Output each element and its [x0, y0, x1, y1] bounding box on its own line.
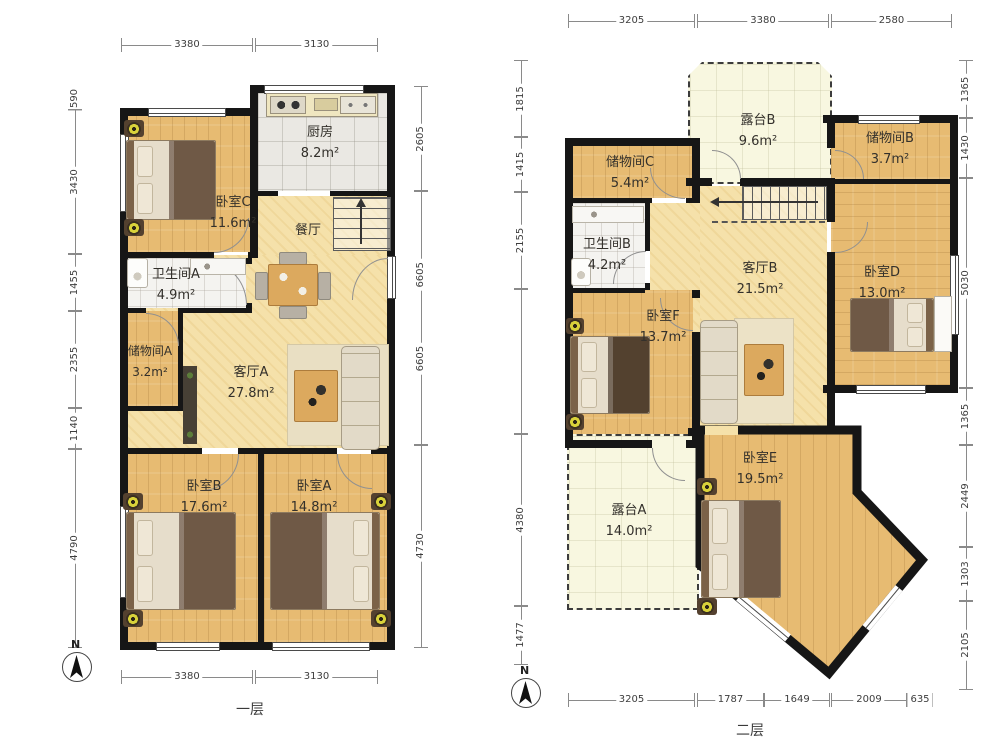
dim-left: 2155	[514, 191, 528, 290]
dim-top: 3205	[568, 14, 695, 28]
stairs-arrow-icon	[356, 198, 366, 207]
dim-top: 3380	[121, 38, 253, 52]
stairs-icon	[742, 186, 827, 220]
dim-right: 2605	[414, 86, 428, 192]
dim-bottom: 635	[907, 693, 933, 707]
nightstand-icon	[123, 610, 143, 627]
stairs-dashed-line	[712, 221, 825, 223]
window	[856, 385, 926, 394]
wall	[827, 115, 835, 148]
bed-icon	[126, 512, 236, 610]
nightstand-icon	[124, 219, 144, 236]
sink-icon	[340, 96, 376, 114]
wall	[692, 290, 700, 298]
coffee-table-icon	[744, 344, 784, 396]
dim-left: 1415	[514, 136, 528, 193]
dim-left: 590	[68, 86, 82, 111]
dim-right: 4730	[414, 444, 428, 648]
dim-left: 1455	[68, 253, 82, 312]
dim-right: 1430	[959, 117, 973, 179]
dim-left: 4380	[514, 433, 528, 607]
bath-counter	[572, 206, 644, 223]
room-label-living-b: 客厅B21.5m²	[737, 258, 784, 300]
wall	[565, 440, 652, 448]
nightstand-icon	[124, 120, 144, 137]
bed-icon	[570, 336, 650, 414]
room-label-bedroom-b: 卧室B17.6m²	[181, 476, 228, 518]
wall	[686, 198, 692, 203]
chair-icon	[255, 272, 268, 300]
compass-n-label: N	[520, 664, 529, 677]
dim-right: 1303	[959, 546, 973, 602]
room-label-bedroom-c: 卧室C11.6m²	[210, 192, 257, 234]
room-label-storage-a: 储物间A3.2m²	[128, 341, 172, 383]
dim-right: 2449	[959, 444, 973, 548]
wall	[124, 308, 146, 313]
dim-top: 2580	[831, 14, 952, 28]
room-label-kitchen: 厨房8.2m²	[301, 122, 340, 164]
wall	[330, 191, 391, 196]
bed-icon	[126, 140, 216, 220]
room-label-terrace-b: 露台B9.6m²	[739, 110, 778, 152]
room-label-bedroom-e: 卧室E19.5m²	[737, 448, 784, 490]
dim-left: 3430	[68, 109, 82, 255]
dim-left: 1140	[68, 407, 82, 450]
stairs-arrow-icon	[718, 201, 818, 203]
nightstand-icon	[566, 414, 584, 430]
wall	[258, 454, 264, 642]
dim-left: 1815	[514, 60, 528, 138]
dim-right: 1365	[959, 387, 973, 446]
dim-left: 1477	[514, 605, 528, 665]
room-label-bedroom-a: 卧室A14.8m²	[291, 476, 338, 518]
stove-icon	[270, 96, 306, 114]
balcony-door	[387, 256, 396, 299]
room-label-dining: 餐厅	[295, 220, 321, 241]
wardrobe-icon	[934, 296, 952, 352]
bed-icon	[270, 512, 380, 610]
nightstand-icon	[371, 493, 391, 510]
stairs-arrow-icon	[710, 197, 719, 207]
room-label-living-a: 客厅A27.8m²	[228, 362, 275, 404]
dim-left: 2355	[68, 310, 82, 409]
nightstand-icon	[371, 610, 391, 627]
range-hood-icon	[314, 98, 338, 111]
wall	[569, 198, 652, 203]
dim-top: 3380	[697, 14, 829, 28]
room-label-bedroom-d: 卧室D13.0m²	[859, 262, 906, 304]
wall	[124, 448, 202, 454]
floor2-title: 二层	[736, 720, 764, 740]
window	[858, 115, 920, 124]
room-label-storage-c: 储物间C5.4m²	[606, 152, 654, 194]
dining-table-icon	[268, 264, 318, 306]
tv-cabinet-icon	[183, 366, 197, 444]
coffee-table-icon	[294, 370, 338, 422]
floorplan-page: { "floor1": { "label": "一层", "compass": …	[0, 0, 1000, 750]
wall	[692, 138, 700, 203]
room-label-terrace-a: 露台A14.0m²	[606, 500, 653, 542]
chair-icon	[279, 306, 307, 319]
wall	[645, 283, 650, 290]
window	[148, 108, 226, 117]
wall	[178, 308, 251, 313]
room-label-bedroom-f: 卧室F13.7m²	[640, 306, 687, 348]
window	[156, 642, 220, 651]
dim-unlabeled	[514, 288, 528, 435]
sofa-icon	[341, 346, 380, 450]
dim-bottom: 1787	[697, 693, 764, 707]
stairs-arrow-icon	[360, 204, 362, 244]
room-label-bath-b: 卫生间B4.2m²	[583, 234, 631, 276]
dim-bottom: 3205	[568, 693, 695, 707]
room-label-storage-b: 储物间B3.7m²	[866, 128, 914, 170]
wall	[238, 448, 337, 454]
wall	[686, 178, 712, 186]
wall	[827, 178, 835, 222]
room-label-bath-a: 卫生间A4.9m²	[152, 264, 200, 306]
window	[272, 642, 370, 651]
wall	[124, 406, 183, 411]
nightstand-icon	[697, 598, 717, 615]
dim-bottom: 1649	[764, 693, 830, 707]
nightstand-icon	[123, 493, 143, 510]
sofa-icon	[700, 320, 738, 424]
dim-top: 3130	[255, 38, 378, 52]
wall	[565, 138, 700, 146]
dim-bottom: 3130	[255, 670, 378, 684]
nightstand-icon	[566, 318, 584, 334]
chair-icon	[318, 272, 331, 300]
wall	[246, 258, 252, 264]
dim-left: 4790	[68, 448, 82, 648]
nightstand-icon	[697, 478, 717, 495]
wall	[645, 203, 650, 251]
dim-right: 5030	[959, 177, 973, 389]
floor1-title: 一层	[236, 699, 264, 719]
wall	[827, 252, 835, 428]
dim-bottom: 3380	[121, 670, 253, 684]
bed-icon	[850, 298, 934, 352]
wall	[827, 179, 954, 184]
wall	[569, 288, 645, 293]
wall	[740, 178, 831, 186]
bed-icon	[701, 500, 781, 598]
dim-bottom: 2009	[831, 693, 907, 707]
compass-n-label: N	[71, 638, 80, 651]
dim-right: 66056605	[414, 190, 428, 446]
dim-right: 2105	[959, 600, 973, 690]
washer-icon	[127, 258, 148, 288]
dim-right: 1365	[959, 60, 973, 119]
